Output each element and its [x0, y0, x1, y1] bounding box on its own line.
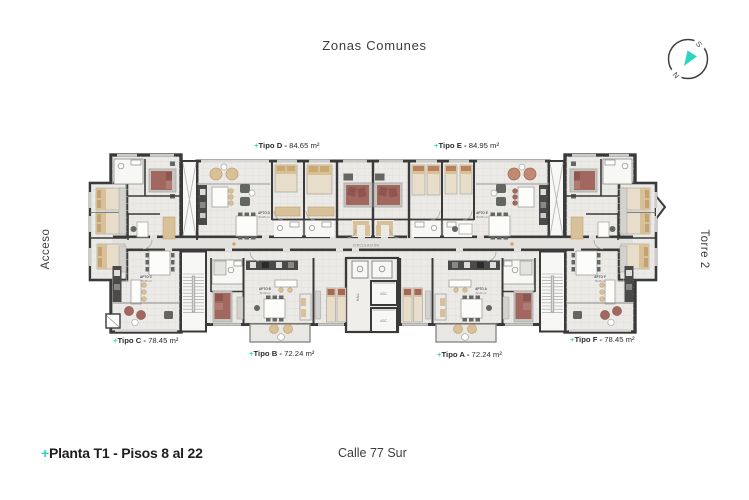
svg-text:84.65 m²: 84.65 m² [258, 215, 269, 219]
svg-text:HALL: HALL [356, 293, 360, 302]
svg-text:ASC.: ASC. [380, 292, 388, 296]
svg-text:78.45 m²: 78.45 m² [140, 279, 151, 283]
svg-text:78.45 m²: 78.45 m² [594, 279, 605, 283]
svg-text:ASC.: ASC. [380, 319, 388, 323]
svg-text:84.95 m²: 84.95 m² [476, 215, 487, 219]
svg-text:72.24 m²: 72.24 m² [475, 291, 486, 295]
svg-text:CIRCULACIÓN: CIRCULACIÓN [353, 243, 380, 248]
svg-text:72.24 m²: 72.24 m² [259, 291, 270, 295]
